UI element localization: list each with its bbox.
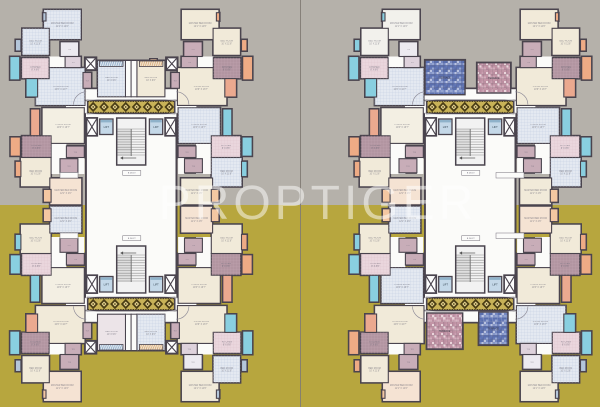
svg-text:KITCHEN8' X 8'6": KITCHEN8' X 8'6" [560,263,570,268]
svg-text:LIVING ROOM10'6" X 16'7": LIVING ROOM10'6" X 16'7" [56,124,71,129]
svg-text:TOI: TOI [67,245,71,247]
svg-text:LIVING ROOM10'6" X 16'7": LIVING ROOM10'6" X 16'7" [194,86,209,91]
svg-text:BED ROOM10' X 11'6": BED ROOM10' X 11'6" [30,237,43,242]
svg-text:TOI: TOI [410,62,414,64]
svg-text:KITCHEN8' X 8'6": KITCHEN8' X 8'6" [561,342,571,347]
svg-text:TOI: TOI [68,49,72,51]
svg-text:LIFT: LIFT [104,283,110,287]
svg-text:TOI: TOI [527,349,531,351]
svg-text:KITCHEN8' X 8'6": KITCHEN8' X 8'6" [561,67,571,72]
svg-text:BED ROOM10' X 11'6": BED ROOM10' X 11'6" [369,171,382,176]
svg-text:TOI: TOI [71,62,75,64]
svg-text:TOI: TOI [530,362,534,364]
svg-text:TOI: TOI [531,166,535,168]
svg-text:LIVING ROOM10'6" X 16'7": LIVING ROOM10'6" X 16'7" [192,124,207,129]
svg-text:BED ROOM10' X 11'6": BED ROOM10' X 11'6" [560,40,573,45]
svg-text:TOI: TOI [74,259,78,261]
svg-text:TOI: TOI [524,259,528,261]
svg-text:TOI: TOI [192,245,196,247]
svg-text:LIFT: LIFT [492,283,498,287]
svg-text:TOI: TOI [524,152,528,154]
svg-text:BED ROOM10' X 11'6": BED ROOM10' X 11'6" [220,237,233,242]
svg-text:KITCHEN8' X 8'6": KITCHEN8' X 8'6" [370,145,380,150]
svg-text:TOI: TOI [406,245,410,247]
svg-text:TOI: TOI [173,331,177,333]
svg-text:LIFT: LIFT [153,125,159,129]
svg-text:TOI: TOI [86,331,90,333]
svg-text:TERRACE: TERRACE [439,330,451,333]
svg-text:TOI: TOI [527,62,531,64]
svg-text:KITCHEN8' X 8'6": KITCHEN8' X 8'6" [369,67,379,72]
svg-text:BED ROOM10' X 9'6": BED ROOM10' X 9'6" [105,331,118,336]
svg-text:LIVING ROOM10'6" X 16'7": LIVING ROOM10'6" X 16'7" [192,284,207,289]
svg-text:LIVING ROOM10'6" X 16'7": LIVING ROOM10'6" X 16'7" [531,124,546,129]
svg-text:TOI: TOI [191,49,195,51]
svg-text:TOI: TOI [74,152,78,154]
svg-text:LIVING ROOM10'6" X 16'7": LIVING ROOM10'6" X 16'7" [56,284,71,289]
svg-text:BED ROOM10' X 11'6": BED ROOM10' X 11'6" [30,171,43,176]
svg-text:B DUCT: B DUCT [467,173,475,175]
svg-text:TOI: TOI [413,259,417,261]
svg-text:LIVING ROOM10'6" X 16'7": LIVING ROOM10'6" X 16'7" [533,86,548,91]
svg-text:TOI: TOI [192,166,196,168]
svg-text:TOI: TOI [71,349,75,351]
svg-text:TOI: TOI [531,245,535,247]
svg-text:TOI: TOI [407,362,411,364]
svg-text:LIVING ROOM10'6" X 16'7": LIVING ROOM10'6" X 16'7" [392,321,407,326]
svg-text:BED ROOM10' X 11'6": BED ROOM10' X 11'6" [220,368,233,373]
svg-text:BED ROOM10' X 9'6": BED ROOM10' X 9'6" [145,77,158,82]
svg-text:TOI: TOI [188,349,192,351]
svg-text:TERRACE: TERRACE [488,77,500,80]
svg-text:TOI: TOI [410,349,414,351]
svg-text:LIFT: LIFT [104,125,110,129]
svg-text:BED ROOM10' X 11'6": BED ROOM10' X 11'6" [220,40,233,45]
svg-text:KITCHEN8' X 8'6": KITCHEN8' X 8'6" [221,145,231,150]
svg-text:TOI: TOI [407,49,411,51]
svg-text:B DUCT: B DUCT [128,238,136,240]
svg-text:KITCHEN8' X 8'6": KITCHEN8' X 8'6" [222,342,232,347]
svg-text:KITCHEN8' X 8'6": KITCHEN8' X 8'6" [370,263,380,268]
svg-text:TOI: TOI [191,362,195,364]
svg-text:BED ROOM10' X 11'6": BED ROOM10' X 11'6" [560,368,573,373]
svg-text:BED ROOM10' X 11'6": BED ROOM10' X 11'6" [368,40,381,45]
svg-text:BED ROOM10' X 11'6": BED ROOM10' X 11'6" [368,368,381,373]
svg-text:BED ROOM10' X 9'6": BED ROOM10' X 9'6" [105,77,118,82]
svg-text:BED ROOM10' X 11'6": BED ROOM10' X 11'6" [220,171,233,176]
svg-text:KITCHEN8' X 8'6": KITCHEN8' X 8'6" [30,342,40,347]
svg-text:LIFT: LIFT [492,125,498,129]
svg-text:LIVING ROOM10'6" X 16'7": LIVING ROOM10'6" X 16'7" [533,321,548,326]
svg-text:LIFT: LIFT [153,283,159,287]
svg-text:BED ROOM10' X 11'6": BED ROOM10' X 11'6" [369,237,382,242]
svg-text:TOI: TOI [173,80,177,82]
svg-text:TOI: TOI [185,152,189,154]
svg-text:BED ROOM10' X 11'6": BED ROOM10' X 11'6" [559,171,572,176]
svg-text:TOI: TOI [67,166,71,168]
svg-text:TERRACE: TERRACE [439,76,451,79]
svg-text:BED ROOM10' X 11'6": BED ROOM10' X 11'6" [29,40,42,45]
svg-text:BED ROOM10' X 9'6": BED ROOM10' X 9'6" [145,331,158,336]
svg-text:TOI: TOI [185,259,189,261]
svg-text:LIVING ROOM10'6" X 16'7": LIVING ROOM10'6" X 16'7" [395,284,410,289]
svg-text:BED ROOM10' X 11'6": BED ROOM10' X 11'6" [29,368,42,373]
svg-text:KITCHEN8' X 8'6": KITCHEN8' X 8'6" [31,263,41,268]
svg-text:PROPTIGER: PROPTIGER [159,177,478,230]
svg-text:LIVING ROOM10'6" X 16'7": LIVING ROOM10'6" X 16'7" [531,284,546,289]
svg-text:KITCHEN8' X 8'6": KITCHEN8' X 8'6" [31,145,41,150]
svg-text:LIFT: LIFT [443,283,449,287]
svg-text:TOI: TOI [413,152,417,154]
svg-text:TOI: TOI [86,80,90,82]
svg-text:LIVING ROOM10'6" X 16'7": LIVING ROOM10'6" X 16'7" [53,86,68,91]
svg-text:TOI: TOI [530,49,534,51]
svg-text:KITCHEN8' X 8'6": KITCHEN8' X 8'6" [30,67,40,72]
svg-text:TERRACE: TERRACE [488,328,500,331]
svg-text:TOI: TOI [188,62,192,64]
svg-text:TOI: TOI [68,362,72,364]
svg-text:LIFT: LIFT [443,125,449,129]
svg-text:LIVING ROOM10'6" X 16'7": LIVING ROOM10'6" X 16'7" [194,321,209,326]
svg-text:KITCHEN8' X 8'6": KITCHEN8' X 8'6" [560,145,570,150]
svg-text:LIVING ROOM10'6" X 16'7": LIVING ROOM10'6" X 16'7" [395,124,410,129]
svg-text:TOI: TOI [406,166,410,168]
svg-text:BED ROOM10' X 11'6": BED ROOM10' X 11'6" [559,237,572,242]
svg-text:B DUCT: B DUCT [467,238,475,240]
svg-text:KITCHEN8' X 8'6": KITCHEN8' X 8'6" [222,67,232,72]
svg-text:LIVING ROOM10'6" X 16'7": LIVING ROOM10'6" X 16'7" [53,321,68,326]
svg-text:LIVING ROOM10'6" X 16'7": LIVING ROOM10'6" X 16'7" [392,86,407,91]
svg-text:KITCHEN8' X 8'6": KITCHEN8' X 8'6" [369,342,379,347]
svg-text:KITCHEN8' X 8'6": KITCHEN8' X 8'6" [221,263,231,268]
svg-text:B DUCT: B DUCT [128,173,136,175]
